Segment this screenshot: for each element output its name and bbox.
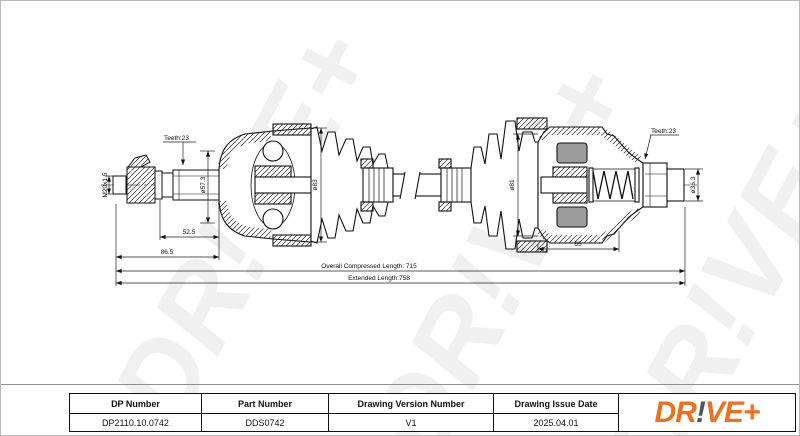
outer-cv-joint: [219, 124, 311, 246]
outer-joint-diameter-label: ø57.3: [200, 176, 207, 193]
title-block-table: DP Number Part Number Drawing Version Nu…: [69, 393, 796, 432]
bearing-ball: [263, 209, 283, 229]
extended-length-label: Extended Length:758: [348, 275, 410, 282]
part-number-value: DDS0742: [202, 414, 329, 431]
right-boot: [439, 121, 538, 249]
drawing-version-header: Drawing Version Number: [329, 394, 494, 414]
brand-logo-cell: DR!VE+: [619, 394, 795, 431]
tripod-roller: [557, 143, 587, 163]
spline-length-label: 52.5: [183, 229, 196, 236]
left-boot: [311, 127, 393, 243]
interconnecting-shaft: [393, 172, 441, 199]
axle-technical-drawing: Teeth:23 Teeth:23 M20x1.5 ø57.3 ø83 ø81 …: [1, 1, 800, 436]
left-section-length-label: 86.5: [161, 249, 174, 256]
dp-number-value: DP2110.10.0742: [70, 414, 202, 431]
logo-suffix: VE+: [705, 396, 760, 428]
teeth-left-label: Teeth:23: [164, 135, 189, 142]
bearing-ball: [263, 141, 283, 161]
teeth-right-label: Teeth:23: [651, 128, 676, 135]
boot-clamp: [363, 168, 393, 202]
right-stub-diameter-label: ø36.3: [690, 176, 697, 193]
boot-clamp: [441, 168, 471, 202]
dp-number-header: DP Number: [70, 394, 202, 414]
drawing-version-value: V1: [329, 414, 494, 431]
thread-spec-label: M20x1.5: [102, 172, 109, 197]
logo-prefix: DR: [655, 396, 696, 428]
part-number-header: Part Number: [202, 394, 329, 414]
overall-compressed-length-label: Overall Compressed Length: 715: [321, 263, 417, 270]
issue-date-header: Drawing Issue Date: [494, 394, 619, 414]
drawing-sheet: DR!VE+ DR!VE+ DR!VE+: [0, 0, 800, 436]
drive-plus-logo: DR!VE+: [655, 398, 760, 427]
right-output-stub: [643, 163, 684, 207]
right-boot-diameter-label: ø81: [509, 179, 516, 191]
issue-date-value: 2025.04.01: [494, 414, 619, 431]
tripod-roller: [557, 207, 587, 227]
logo-exclamation: !: [696, 396, 705, 428]
right-section-length-label: 65: [574, 241, 582, 248]
left-boot-diameter-label: ø83: [312, 179, 319, 191]
sheet-divider: [1, 384, 800, 385]
